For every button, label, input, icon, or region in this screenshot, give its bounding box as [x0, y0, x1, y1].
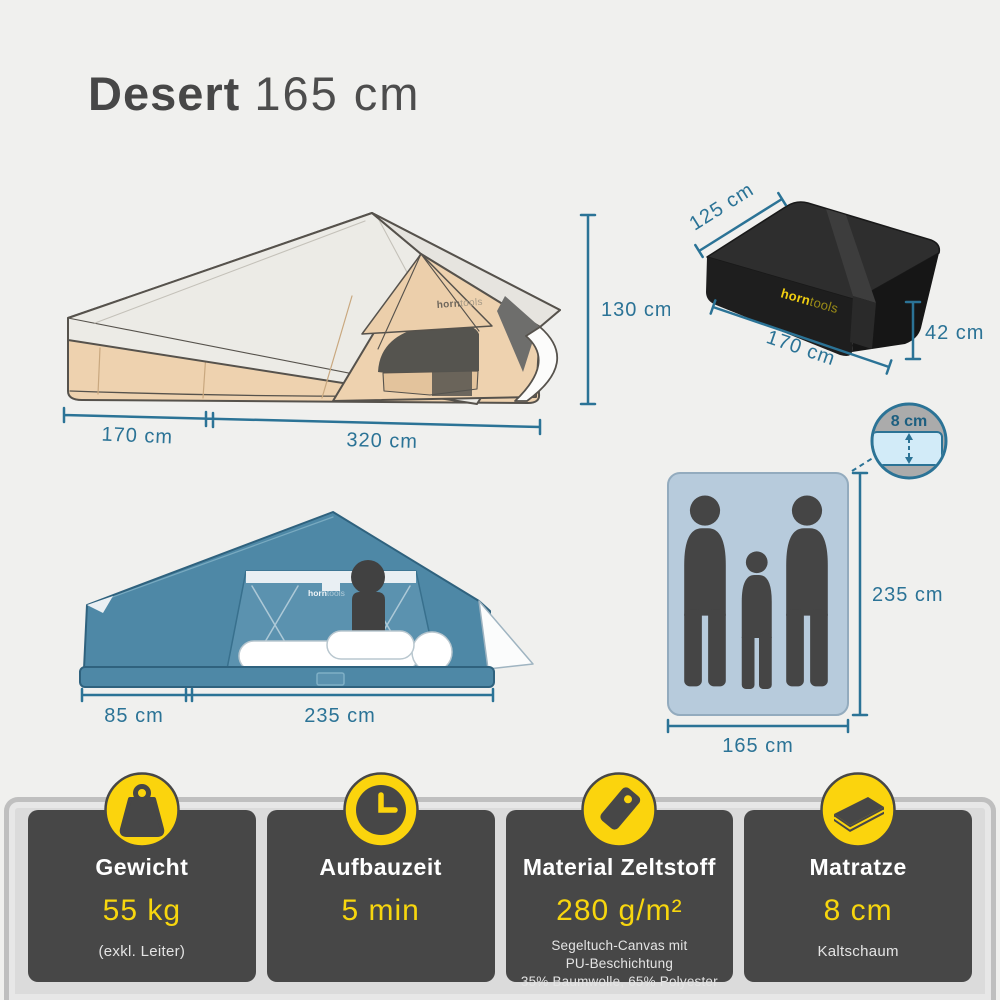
spec-title: Gewicht — [28, 854, 256, 881]
page-title: Desert 165 cm — [88, 66, 420, 121]
spec-title: Aufbauzeit — [267, 854, 495, 881]
dimension-85-235: 85 cm 235 cm — [82, 689, 493, 727]
spec-card-material: Material Zeltstoff 280 g/m² Segeltuch-Ca… — [506, 810, 734, 982]
svg-text:42 cm: 42 cm — [925, 322, 984, 344]
spec-value: 8 cm — [744, 894, 972, 928]
spec-value: 5 min — [267, 894, 495, 928]
product-variant: 165 cm — [254, 66, 420, 121]
dimension-height-130: 130 cm — [581, 215, 670, 404]
svg-text:235 cm: 235 cm — [304, 705, 376, 727]
blue-tent-door-flap — [479, 601, 533, 669]
spec-value: 55 kg — [28, 894, 256, 928]
spec-value: 280 g/m² — [506, 894, 734, 928]
dimension-length-235: 235 cm — [853, 473, 944, 715]
product-name: Desert — [88, 66, 240, 121]
spec-note: (exkl. Leiter) — [28, 943, 256, 960]
weight-icon — [104, 772, 180, 848]
spec-card-matratze: Matratze 8 cm Kaltschaum — [744, 810, 972, 982]
svg-text:165 cm: 165 cm — [722, 735, 794, 757]
tag-icon — [581, 772, 657, 848]
spec-title: Matratze — [744, 854, 972, 881]
dimension-width-170-320: 170 cm 320 cm — [64, 408, 540, 453]
spec-title: Material Zeltstoff — [506, 854, 734, 881]
spec-note: Segeltuch-Canvas mit PU-Beschichtung 35%… — [506, 937, 734, 990]
tent-side-view-illustration: horntools 130 cm 170 cm 320 cm — [30, 195, 670, 455]
spec-card-aufbauzeit: Aufbauzeit 5 min — [267, 810, 495, 982]
tent-front-cross-section-illustration: horntools 85 cm 235 cm — [55, 485, 555, 735]
spec-panel: Gewicht 55 kg (exkl. Leiter) Aufbauzeit … — [4, 797, 996, 1000]
infographic-page: Desert 165 cm — [0, 0, 1000, 1000]
mattress-top-view-illustration: 8 cm 235 cm 165 cm — [630, 395, 990, 770]
clock-icon — [343, 772, 419, 848]
svg-text:320 cm: 320 cm — [346, 429, 418, 453]
svg-text:125 cm: 125 cm — [686, 185, 758, 235]
svg-text:235 cm: 235 cm — [872, 584, 944, 606]
spec-note: Kaltschaum — [744, 943, 972, 960]
packed-tent-illustration: horntools 125 cm 170 cm 42 cm — [660, 185, 990, 400]
mattress-icon — [820, 772, 896, 848]
svg-text:85 cm: 85 cm — [104, 705, 163, 727]
mattress-thickness-callout: 8 cm — [872, 404, 946, 478]
spec-card-gewicht: Gewicht 55 kg (exkl. Leiter) — [28, 810, 256, 982]
brand-logo-in-tent: horntools — [308, 588, 345, 598]
callout-thickness-label: 8 cm — [891, 413, 927, 430]
svg-text:170 cm: 170 cm — [101, 423, 173, 448]
tent-base — [80, 667, 494, 687]
dimension-width-165: 165 cm — [668, 720, 848, 757]
